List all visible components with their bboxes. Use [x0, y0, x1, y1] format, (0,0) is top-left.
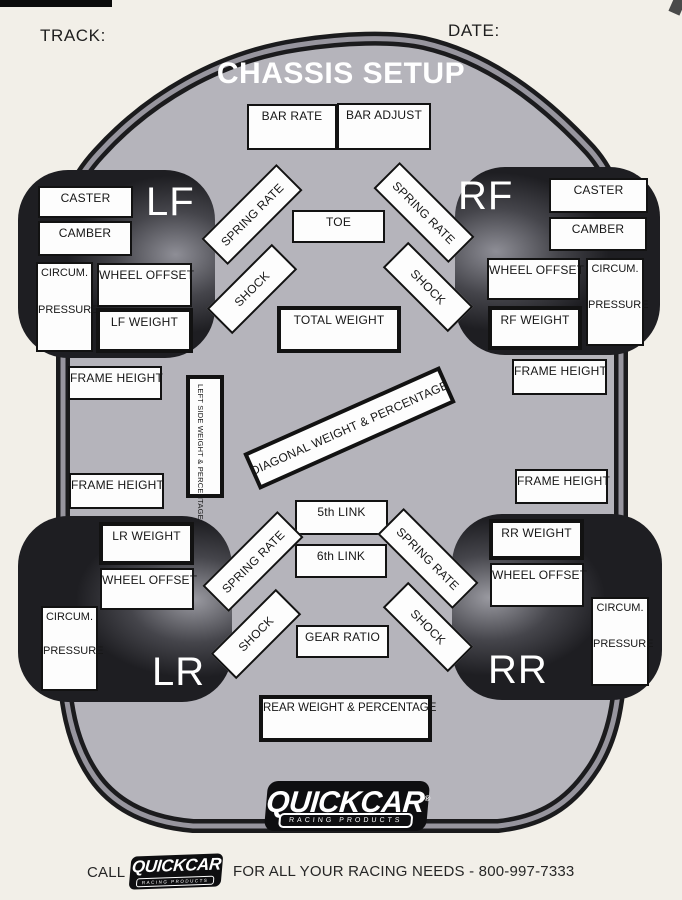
- rf-corner-label: RF: [458, 174, 513, 219]
- rf-wheel-offset-label: WHEEL OFFSET: [489, 263, 578, 277]
- total-weight-label: TOTAL WEIGHT: [281, 313, 397, 327]
- rear-weight-field[interactable]: REAR WEIGHT & PERCENTAGE: [259, 695, 432, 742]
- toe-field[interactable]: TOE: [292, 210, 385, 243]
- rf-pressure-label: PRESSURE: [588, 299, 642, 311]
- rf-weight-field[interactable]: RF WEIGHT: [488, 306, 582, 350]
- fifth-link-label: 5th LINK: [297, 505, 386, 519]
- lr-circum-pressure-field[interactable]: CIRCUM. PRESSURE: [41, 606, 98, 691]
- rf-camber-label: CAMBER: [551, 222, 645, 236]
- bar-rate-field[interactable]: BAR RATE: [247, 104, 337, 150]
- quickcar-footer-logo: QUICKCAR RACING PRODUCTS: [129, 853, 224, 889]
- lf-camber-label: CAMBER: [40, 226, 130, 240]
- lf-circum-pressure-field[interactable]: CIRCUM. PRESSURE: [36, 262, 93, 352]
- fifth-link-field[interactable]: 5th LINK: [295, 500, 388, 535]
- gear-ratio-field[interactable]: GEAR RATIO: [296, 625, 389, 658]
- bar-adjust-field[interactable]: BAR ADJUST: [337, 103, 431, 150]
- bar-rate-label: BAR RATE: [249, 109, 335, 123]
- rr-pressure-label: PRESSURE: [593, 638, 647, 650]
- lr-circum-label: CIRCUM.: [43, 611, 96, 623]
- scan-artifact-top: [0, 0, 112, 7]
- date-label: DATE:: [448, 21, 500, 41]
- lr-weight-label: LR WEIGHT: [103, 529, 190, 543]
- lr-corner-label: LR: [152, 650, 205, 695]
- track-label: TRACK:: [40, 26, 106, 46]
- rr-wheel-offset-label: WHEEL OFFSET: [492, 568, 582, 582]
- lf-weight-label: LF WEIGHT: [100, 315, 189, 329]
- frame-height-front-right-field[interactable]: FRAME HEIGHT: [512, 359, 607, 395]
- rf-circum-label: CIRCUM.: [588, 263, 642, 275]
- toe-label: TOE: [294, 215, 383, 229]
- rf-weight-label: RF WEIGHT: [492, 313, 578, 327]
- frame-height-label: FRAME HEIGHT: [71, 478, 162, 492]
- rear-weight-label: REAR WEIGHT & PERCENTAGE: [263, 702, 428, 714]
- rr-wheel-offset-field[interactable]: WHEEL OFFSET: [490, 563, 584, 607]
- rf-circum-pressure-field[interactable]: CIRCUM. PRESSURE: [586, 258, 644, 346]
- lr-wheel-offset-field[interactable]: WHEEL OFFSET: [100, 568, 194, 610]
- bar-adjust-label: BAR ADJUST: [339, 108, 429, 122]
- lf-wheel-offset-field[interactable]: WHEEL OFFSET: [97, 263, 192, 307]
- quickcar-footer-logo-text: QUICKCAR: [130, 854, 224, 877]
- rr-weight-field[interactable]: RR WEIGHT: [489, 519, 584, 560]
- chassis-setup-sheet: TRACK: DATE: CHASSIS SETUP LF RF LR RR B…: [0, 0, 682, 900]
- lf-caster-label: CASTER: [40, 191, 131, 205]
- frame-height-rear-right-field[interactable]: FRAME HEIGHT: [515, 469, 608, 504]
- registered-mark: ®: [424, 794, 430, 803]
- frame-height-label: FRAME HEIGHT: [517, 474, 606, 488]
- lr-pressure-label: PRESSURE: [43, 645, 96, 657]
- rf-camber-field[interactable]: CAMBER: [549, 217, 647, 251]
- quickcar-logo: QUICKCAR® RACING PRODUCTS: [264, 781, 430, 831]
- rf-caster-field[interactable]: CASTER: [549, 178, 648, 213]
- lf-camber-field[interactable]: CAMBER: [38, 221, 132, 256]
- gear-ratio-label: GEAR RATIO: [298, 630, 387, 644]
- sixth-link-field[interactable]: 6th LINK: [295, 544, 387, 578]
- quickcar-footer-logo-tagline: RACING PRODUCTS: [136, 876, 215, 888]
- sixth-link-label: 6th LINK: [297, 549, 385, 563]
- left-side-weight-label: LEFT SIDE WEIGHT & PERCENTAGE: [196, 384, 205, 520]
- frame-height-label: FRAME HEIGHT: [70, 371, 160, 385]
- frame-height-label: FRAME HEIGHT: [514, 364, 605, 378]
- rf-caster-label: CASTER: [551, 183, 646, 197]
- lf-caster-field[interactable]: CASTER: [38, 186, 133, 218]
- rf-wheel-offset-field[interactable]: WHEEL OFFSET: [487, 258, 580, 300]
- frame-height-front-left-field[interactable]: FRAME HEIGHT: [68, 366, 162, 400]
- total-weight-field[interactable]: TOTAL WEIGHT: [277, 306, 401, 353]
- lf-corner-label: LF: [146, 180, 195, 225]
- footer-call-label: CALL: [87, 864, 125, 881]
- page-title: CHASSIS SETUP: [0, 57, 682, 91]
- frame-height-rear-left-field[interactable]: FRAME HEIGHT: [69, 473, 164, 509]
- rr-circum-label: CIRCUM.: [593, 602, 647, 614]
- left-side-weight-field[interactable]: LEFT SIDE WEIGHT & PERCENTAGE: [186, 375, 224, 498]
- lf-pressure-label: PRESSURE: [38, 304, 91, 316]
- rr-corner-label: RR: [488, 648, 548, 693]
- lf-circum-label: CIRCUM.: [38, 267, 91, 279]
- lf-weight-field[interactable]: LF WEIGHT: [96, 308, 193, 353]
- rr-circum-pressure-field[interactable]: CIRCUM. PRESSURE: [591, 597, 649, 686]
- rr-weight-label: RR WEIGHT: [493, 526, 580, 540]
- quickcar-logo-tagline: RACING PRODUCTS: [278, 813, 413, 828]
- footer-message: FOR ALL YOUR RACING NEEDS - 800-997-7333: [233, 863, 574, 880]
- lr-weight-field[interactable]: LR WEIGHT: [99, 522, 194, 565]
- lr-wheel-offset-label: WHEEL OFFSET: [102, 573, 192, 587]
- lf-wheel-offset-label: WHEEL OFFSET: [99, 268, 190, 282]
